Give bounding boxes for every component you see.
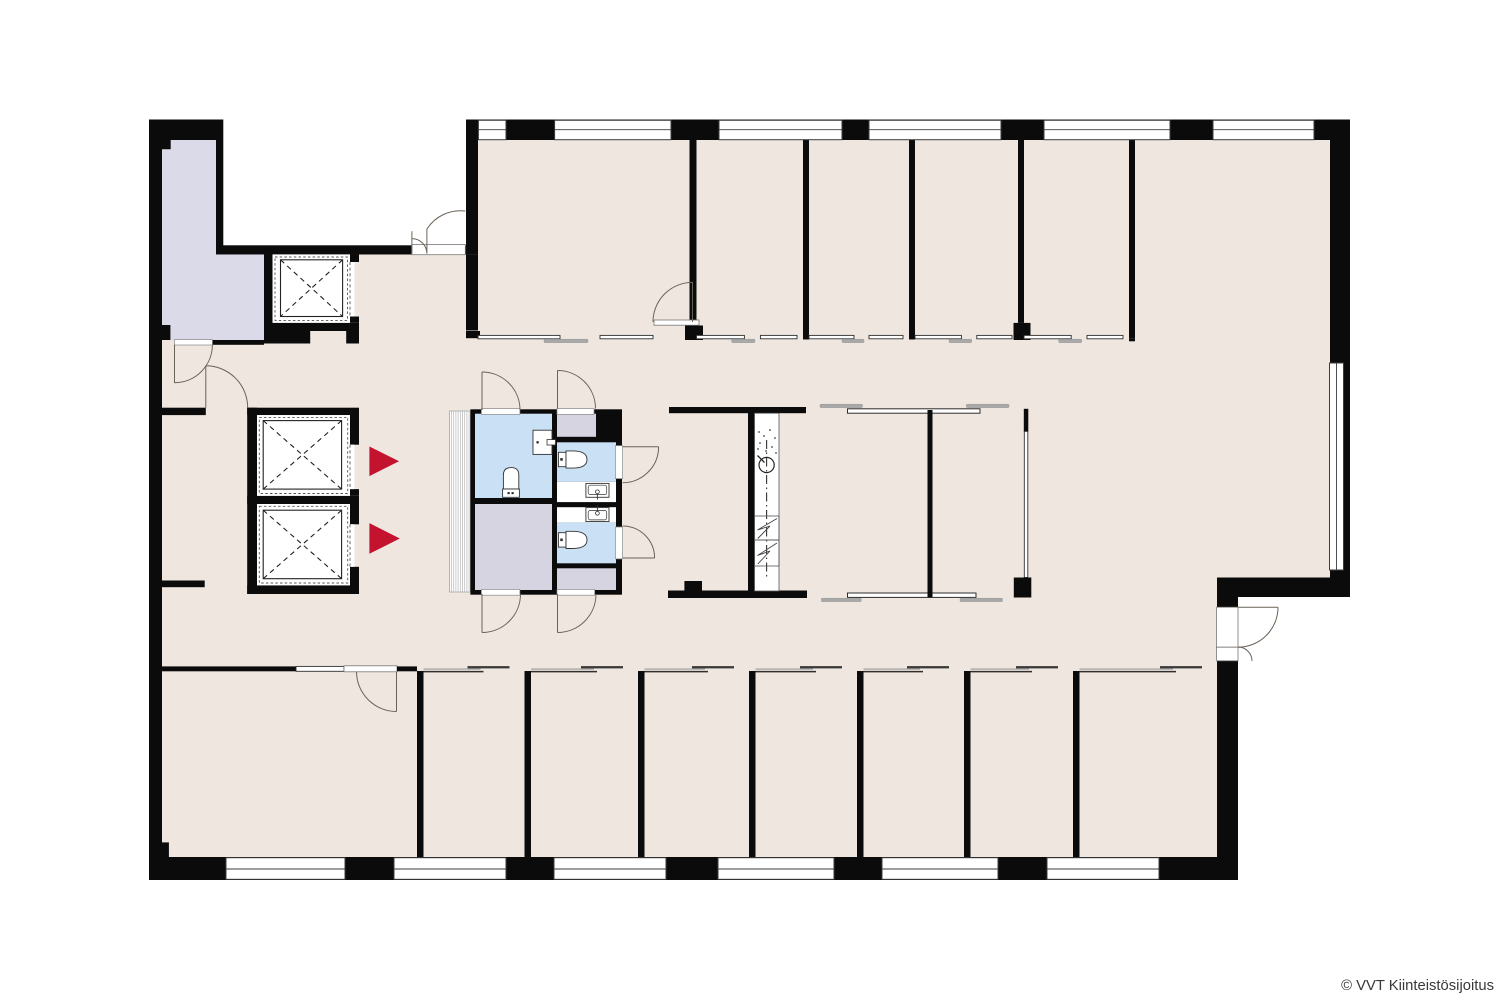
svg-text:© VVT Kiinteistösijoitus: © VVT Kiinteistösijoitus — [1341, 978, 1494, 994]
